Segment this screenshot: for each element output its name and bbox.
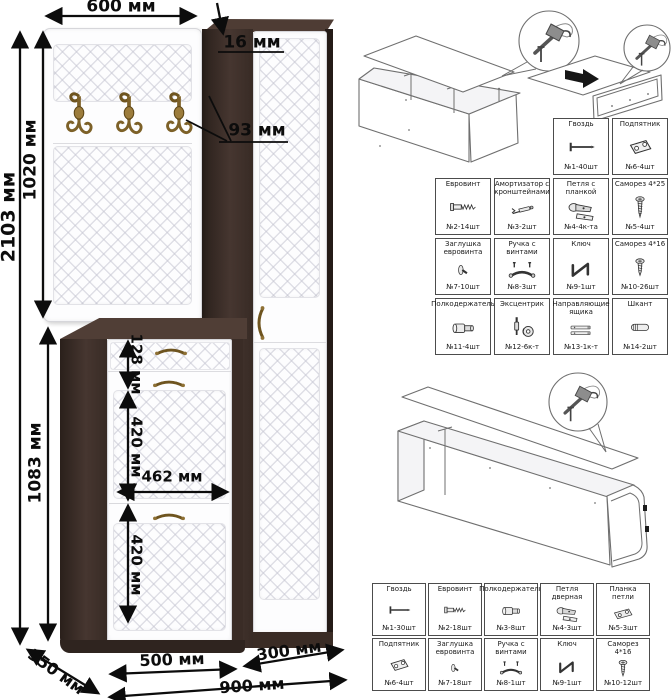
coat-hook-icon[interactable] [63, 89, 95, 143]
part-cell: Саморез 4*16№10-12шт [596, 638, 650, 691]
nail-icon [383, 600, 415, 620]
hex-key-icon [565, 255, 597, 279]
drawer-slides-icon [564, 320, 598, 340]
floor-glide-icon [383, 655, 415, 675]
dim-panel-width: 600 мм [86, 0, 155, 16]
handle-icon [495, 658, 527, 678]
hammer-callout-circle [549, 373, 607, 431]
shelf-pin-icon [495, 600, 527, 620]
hinge-plate-icon [607, 603, 639, 623]
back-panel-assembly-diagram [398, 373, 649, 567]
part-cell: Полкодержатель№3-8шт [484, 583, 538, 636]
dim-inner-width: 462 мм [141, 470, 202, 485]
shoe-cabinet-side-panel [60, 339, 107, 650]
dim-drawer-height: 128 мм [129, 333, 144, 394]
hinge-icon [551, 603, 583, 623]
part-cell: Заглушка евровинта№7-18шт [428, 638, 482, 691]
floor-glide-icon [624, 135, 656, 159]
handle-icon [505, 258, 539, 282]
assembly-sheet: 600 мм 16 мм 93 мм 2103 мм 1020 мм 1083 … [0, 0, 671, 700]
part-cell: Саморез 4*16№10-26шт [612, 238, 668, 295]
confirmat-screw-icon [447, 195, 479, 219]
hammer-callout-circle [624, 25, 670, 71]
screw-4x16-icon [609, 657, 637, 679]
screw-cap-icon [448, 260, 478, 280]
nail-icon [565, 135, 597, 159]
coat-hanger-panel [43, 28, 202, 322]
part-cell: Ручка с винтами№8-3шт [494, 238, 550, 295]
cam-lock-icon [506, 314, 538, 340]
coat-hook-icon[interactable] [113, 89, 145, 143]
flap-handle[interactable] [152, 511, 186, 521]
part-cell: Подпятник№6-4шт [372, 638, 426, 691]
gas-lift-icon [506, 200, 538, 220]
dim-shoe-cabinet-width: 500 мм [139, 651, 205, 669]
part-cell: Полкодержатель№11-4шт [435, 298, 491, 355]
part-cell: Евровинт№2-18шт [428, 583, 482, 636]
drawer-assembly-diagram [528, 25, 670, 121]
screw-cap-icon [441, 660, 469, 676]
shoe-cabinet-front [107, 339, 232, 642]
hammer-icon [535, 24, 572, 62]
screw-4x25-icon [625, 193, 655, 221]
part-cell: Гвоздь№1-30шт [372, 583, 426, 636]
tall-door-handle[interactable] [254, 305, 266, 341]
part-cell: Ручка с винтами№8-1шт [484, 638, 538, 691]
flap-handle[interactable] [152, 378, 186, 388]
hammer-callout-circle [519, 11, 579, 71]
part-cell: Шкант№14-2шт [612, 298, 668, 355]
part-cell: Направляющие ящика№13-1к-т [553, 298, 609, 355]
panel-quilt-bottom [53, 146, 192, 305]
part-cell: Ключ№9-1шт [553, 238, 609, 295]
dim-depth: 350 мм [25, 646, 87, 697]
confirmat-screw-icon [439, 600, 471, 620]
dim-total-width: 900 мм [219, 676, 285, 697]
screw-4x16-icon [625, 254, 655, 280]
dim-base-height: 1083 мм [28, 422, 45, 503]
insert-arrow-icon [565, 69, 599, 88]
part-cell: Гвоздь№1-40шт [553, 118, 609, 175]
part-cell: Планка петли№5-3шт [596, 583, 650, 636]
dim-total-height: 2103 мм [0, 172, 19, 263]
hex-key-icon [552, 655, 582, 675]
part-cell: Ключ№9-1шт [540, 638, 594, 691]
hardware-table-bottom: Гвоздь№1-30шт Евровинт№2-18шт Полкодержа… [372, 583, 650, 691]
hardware-table-top: Гвоздь№1-40шт Подпятник№6-4шт Евровинт№2… [435, 118, 668, 355]
hammer-icon [565, 386, 599, 421]
part-cell: Подпятник№6-4шт [612, 118, 668, 175]
coat-hook-icon[interactable] [163, 89, 195, 143]
drawer-handle[interactable] [154, 346, 188, 356]
dim-lower-flap-height: 420 мм [129, 534, 144, 595]
part-cell: Петля с планкой№4-4к-та [553, 178, 609, 235]
part-cell: Петля дверная№4-3шт [540, 583, 594, 636]
door-quilt-upper [259, 38, 320, 298]
part-cell: Евровинт№2-14шт [435, 178, 491, 235]
dim-panel-height: 1020 мм [23, 119, 40, 200]
part-cell: Заглушка евровинта№7-10шт [435, 238, 491, 295]
shelf-pin-icon [447, 315, 479, 339]
part-cell: Эксцентрик№12-6к-т [494, 298, 550, 355]
hinge-icon [565, 198, 597, 222]
door-quilt-lower [259, 348, 320, 600]
part-cell: Амортизатор с кронштейнами№3-2шт [494, 178, 550, 235]
dowel-icon [624, 316, 656, 338]
dim-panel-thickness: 16 мм [223, 35, 280, 52]
dim-hook-offset: 93 мм [228, 123, 285, 140]
hammer-icon [637, 35, 667, 66]
part-cell: Саморез 4*25№5-4шт [612, 178, 668, 235]
